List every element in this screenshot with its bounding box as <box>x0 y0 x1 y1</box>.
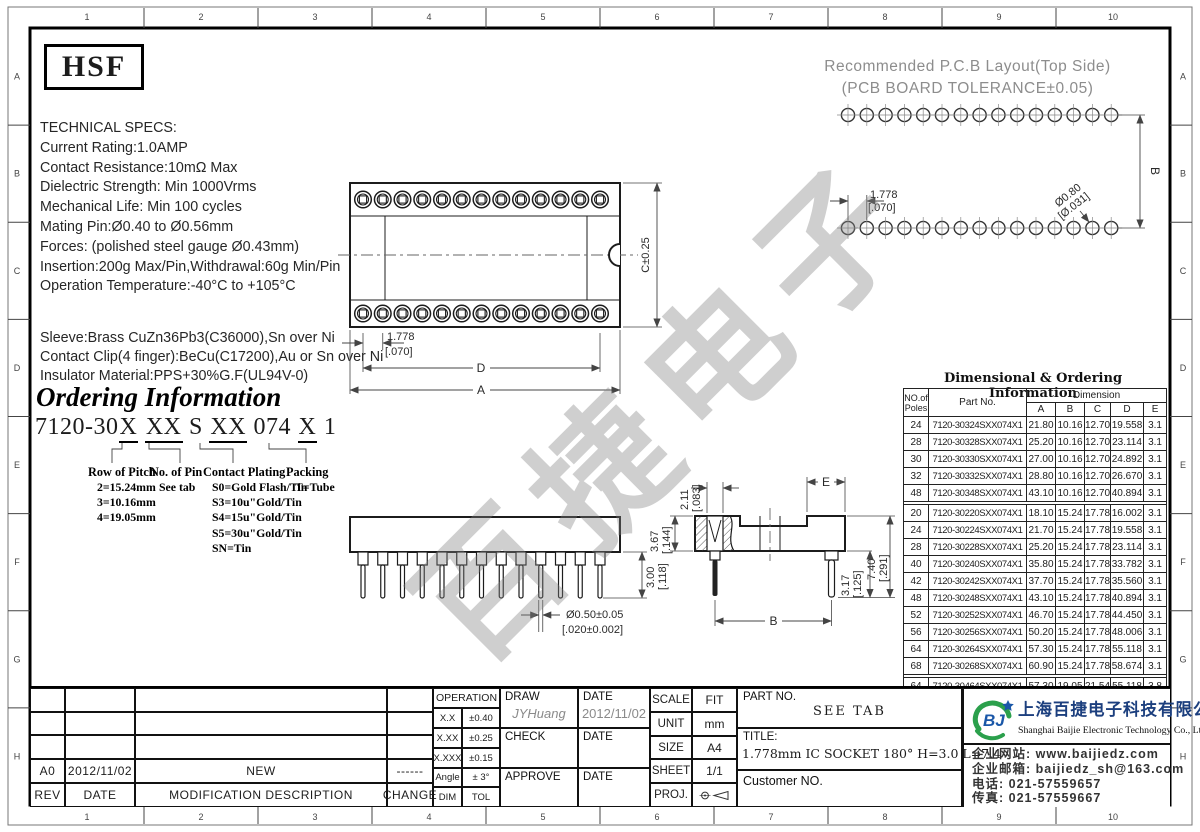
projection-symbol-cell <box>692 783 737 807</box>
svg-text:10: 10 <box>1108 12 1118 22</box>
sheet-info-value: 1/1 <box>692 759 737 783</box>
pin-diameter-dim: Ø0.50±0.05 <box>566 609 623 621</box>
table-row: 427120-30242SXX074X137.7015.2417.7835.56… <box>904 573 1167 590</box>
tolerance-header: OPERATION <box>433 688 500 708</box>
side-total-dim-in: [.291] <box>878 554 890 582</box>
table-row: 527120-30252SXX074X146.7015.2417.7844.45… <box>904 607 1167 624</box>
customer-cell: Customer NO. <box>737 770 962 807</box>
svg-text:7: 7 <box>768 812 773 822</box>
table-row: 287120-30228SXX074X125.2015.2417.7823.11… <box>904 539 1167 556</box>
part-code-segment <box>138 414 145 440</box>
revision-cell <box>30 712 65 735</box>
tech-specs-lines: Current Rating:1.0AMPContact Resistance:… <box>40 139 390 297</box>
table-row: 327120-30332SXX074X128.8010.1612.7026.67… <box>904 468 1167 485</box>
drawing-sheet: 1122334455667788991010AABBCCDDEEFFGGHH 百… <box>0 0 1200 832</box>
dim-col-header: A <box>1027 403 1056 417</box>
company-contact-cell: 企业网站: www.baijiedz.com企业邮箱: baijiedz_sh@… <box>962 744 1170 807</box>
svg-text:A: A <box>14 72 20 82</box>
revision-cell: 2012/11/02 <box>65 759 135 783</box>
svg-text:9: 9 <box>996 812 1001 822</box>
side-pin-dim: 3.17 <box>840 575 852 596</box>
approve-label: APPROVE <box>505 771 561 783</box>
table-row: 567120-30256SXX074X150.2015.2417.7848.00… <box>904 624 1167 641</box>
company-contact-line: 企业网站: www.baijiedz.com <box>972 747 1184 762</box>
revision-cell: A0 <box>30 759 65 783</box>
svg-text:9: 9 <box>996 12 1001 22</box>
ordering-part-code: 7120-30X XX S XX 074 X 1 <box>35 414 336 441</box>
side-b-dim: B <box>769 614 777 628</box>
svg-text:4: 4 <box>426 12 431 22</box>
part-code-segment: X <box>298 414 318 443</box>
spec-line: Operation Temperature:-40°C to +105°C <box>40 277 390 297</box>
pin-diameter-dim-in: [.020±0.002] <box>562 624 623 636</box>
check-cell: CHECK <box>500 728 578 768</box>
ordering-group-title: Packing <box>286 465 335 480</box>
svg-text:D: D <box>14 363 21 373</box>
svg-text:E: E <box>14 460 20 470</box>
revision-cell <box>135 735 387 759</box>
part-no-value: SEE TAB <box>813 704 886 719</box>
part-code-segment: 1 <box>317 414 336 440</box>
ordering-group-line: See tab <box>150 480 202 495</box>
svg-text:F: F <box>14 557 20 567</box>
side-pin-dim-in: [.125] <box>852 570 864 598</box>
tolerance-value: ±0.40 <box>462 708 500 728</box>
sheet-info-value: A4 <box>692 736 737 759</box>
table-row: 647120-30264SXX074X157.3015.2417.7855.11… <box>904 641 1167 658</box>
company-name-en: Shanghai Baijie Electronic Technology Co… <box>1018 725 1200 736</box>
table-row: 247120-30324SXX074X121.8010.1612.7019.55… <box>904 417 1167 434</box>
ordering-group-line: 4=19.05mm <box>88 510 156 525</box>
date-label: DATE <box>583 731 613 743</box>
part-code-segment: XX <box>209 414 247 443</box>
spec-line: Mating Pin:Ø0.40 to Ø0.56mm <box>40 218 390 238</box>
svg-text:B: B <box>1180 169 1186 179</box>
hsf-logo-box: HSF <box>44 44 144 90</box>
third-angle-projection-icon <box>698 788 732 803</box>
ordering-group-line: T=Tube <box>286 480 335 495</box>
spec-line: Current Rating:1.0AMP <box>40 139 390 159</box>
ordering-title: Ordering Information <box>36 382 281 413</box>
ordering-group: PackingT=Tube <box>286 465 335 495</box>
draw-date: 2012/11/02 <box>582 706 646 721</box>
socket-side-section: 2.11 [.083] 3.67 [.144] E 7.40 [.291] 3.… <box>650 468 908 660</box>
revision-cell: NEW <box>135 759 387 783</box>
tolerance-value: ± 3° <box>462 768 500 787</box>
ordering-group-line: SN=Tin <box>203 541 307 556</box>
spec-line: Dielectric Strength: Min 1000Vrms <box>40 178 390 198</box>
check-label: CHECK <box>505 731 545 743</box>
col-header-poles: NO.ofPoles <box>904 389 929 417</box>
ordering-group-line: S4=15u"Gold/Tin <box>203 510 307 525</box>
table-row: 487120-30348SXX074X143.1010.1612.7040.89… <box>904 485 1167 502</box>
side-body-dim-in: [.144] <box>661 526 673 554</box>
ordering-legend: Row of Pitch2=15.24mm3=10.16mm4=19.05mmN… <box>30 465 375 560</box>
sheet-info-label: SHEET <box>650 759 692 783</box>
tolerance-label: Angle <box>433 768 462 787</box>
ordering-group: Row of Pitch2=15.24mm3=10.16mm4=19.05mm <box>88 465 156 526</box>
svg-text:4: 4 <box>426 812 431 822</box>
tolerance-label: X.X <box>433 708 462 728</box>
draw-date-cell: DATE 2012/11/02 <box>578 688 650 728</box>
socket-pins <box>358 552 605 598</box>
svg-text:1: 1 <box>84 12 89 22</box>
side-body-dim: 3.67 <box>649 531 661 552</box>
svg-text:BJ: BJ <box>983 711 1005 730</box>
svg-text:8: 8 <box>882 812 887 822</box>
side-e-dim: E <box>822 475 830 489</box>
pcb-layout-drawing: 1.778 [.070] Ø0.80 [Ø.031] B <box>818 98 1170 250</box>
spec-line: Contact Resistance:10mΩ Max <box>40 159 390 179</box>
svg-text:7: 7 <box>768 12 773 22</box>
company-contact-line: 传真: 021-57559667 <box>972 791 1184 806</box>
revision-cell: CHANGE <box>387 783 433 807</box>
top-view-height-dim: C±0.25 <box>640 237 652 272</box>
dim-col-header: E <box>1144 403 1167 417</box>
part-code-segment: 7120-30 <box>35 414 119 440</box>
svg-text:10: 10 <box>1108 812 1118 822</box>
table-row: 307120-30330SXX074X127.0010.1612.7024.89… <box>904 451 1167 468</box>
svg-text:1: 1 <box>84 812 89 822</box>
socket-front-view: 3.00 [.118] Ø0.50±0.05 [.020±0.002] <box>340 500 680 660</box>
draw-name: JYHuang <box>512 706 565 721</box>
tolerance-value: ±0.15 <box>462 748 500 768</box>
revision-cell <box>65 735 135 759</box>
dim-table: NO.ofPoles Part No. Dimension ABCDE 2471… <box>903 388 1167 695</box>
customer-label: Customer NO. <box>738 771 823 788</box>
revision-cell <box>30 735 65 759</box>
date-label: DATE <box>583 771 613 783</box>
title-cell: TITLE: 1.778mm IC SOCKET 180° H=3.0 L=7.… <box>737 728 962 770</box>
svg-text:6: 6 <box>654 812 659 822</box>
approve-date-cell: DATE <box>578 768 650 807</box>
title-block: A02012/11/02NEW------REVDATEMODIFICATION… <box>30 686 1170 807</box>
revision-cell: REV <box>30 783 65 807</box>
ordering-group: No. of PinSee tab <box>150 465 202 495</box>
part-code-segment: X <box>119 414 139 443</box>
table-row: 687120-30268SXX074X160.9015.2417.7858.67… <box>904 658 1167 675</box>
part-code-segment: XX <box>145 414 183 443</box>
company-name-cn: 上海百捷电子科技有限公司 <box>1018 696 1200 720</box>
tech-specs-title: TECHNICAL SPECS: <box>40 119 390 139</box>
svg-text:G: G <box>13 654 20 664</box>
top-view-pitch-dim-in: [.070] <box>385 346 413 358</box>
top-view-d-dim: D <box>477 361 486 375</box>
table-row: 407120-30240SXX074X135.8015.2417.7833.78… <box>904 556 1167 573</box>
tolerance-label: X.XX <box>433 728 462 748</box>
socket-top-view: C±0.25 1.778 [.070] D A <box>340 175 672 405</box>
ordering-group-line: S3=10u"Gold/Tin <box>203 495 307 510</box>
revision-cell: MODIFICATION DESCRIPTION <box>135 783 387 807</box>
svg-text:C: C <box>1180 266 1187 276</box>
sheet-info-label: SIZE <box>650 736 692 759</box>
ordering-group-line: S5=30u"Gold/Tin <box>203 526 307 541</box>
side-total-dim: 7.40 <box>866 559 878 580</box>
tolerance-label: DIM <box>433 787 462 807</box>
table-row: 487120-30248SXX074X143.1015.2417.7840.89… <box>904 590 1167 607</box>
svg-text:E: E <box>1180 460 1186 470</box>
ordering-group-line: 3=10.16mm <box>88 495 156 510</box>
svg-text:A: A <box>1180 72 1186 82</box>
svg-text:H: H <box>14 751 21 761</box>
svg-text:5: 5 <box>540 812 545 822</box>
revision-cell <box>135 712 387 735</box>
date-label: DATE <box>583 691 613 703</box>
tech-specs: TECHNICAL SPECS: Current Rating:1.0AMPCo… <box>40 119 390 297</box>
ordering-group-title: No. of Pin <box>150 465 202 480</box>
dim-col-header: B <box>1056 403 1085 417</box>
part-code-segment: S <box>183 414 210 440</box>
pcb-pitch-dim: 1.778 <box>870 189 898 201</box>
ordering-group-line: 2=15.24mm <box>88 480 156 495</box>
side-contact-dim-in: [.083] <box>691 484 703 512</box>
svg-text:2: 2 <box>198 12 203 22</box>
tolerance-value: ±0.25 <box>462 728 500 748</box>
company-contact-line: 电话: 021-57559657 <box>972 777 1184 792</box>
top-view-a-dim: A <box>477 383 485 397</box>
spec-line: Insertion:200g Max/Pin,Withdrawal:60g Mi… <box>40 258 390 278</box>
spec-line: Forces: (polished steel gauge Ø0.43mm) <box>40 238 390 258</box>
pcb-pitch-dim-in: [.070] <box>868 202 896 214</box>
svg-text:G: G <box>1179 654 1186 664</box>
draw-cell: DRAW JYHuang <box>500 688 578 728</box>
revision-cell <box>65 712 135 735</box>
company-header-cell: BJ 上海百捷电子科技有限公司 Shanghai Baijie Electron… <box>962 688 1170 744</box>
svg-text:6: 6 <box>654 12 659 22</box>
company-contact-lines: 企业网站: www.baijiedz.com企业邮箱: baijiedz_sh@… <box>964 745 1184 806</box>
sheet-info-value: FIT <box>692 688 737 712</box>
revision-cell <box>65 688 135 712</box>
revision-cell <box>135 688 387 712</box>
hsf-logo-text: HSF <box>62 50 126 84</box>
svg-text:2: 2 <box>198 812 203 822</box>
svg-text:8: 8 <box>882 12 887 22</box>
svg-text:3: 3 <box>312 12 317 22</box>
revision-cell <box>387 712 433 735</box>
approve-cell: APPROVE <box>500 768 578 807</box>
dim-col-header: D <box>1111 403 1144 417</box>
pcb-layout-title: Recommended P.C.B Layout(Top Side) <box>795 58 1140 76</box>
revision-cell: DATE <box>65 783 135 807</box>
pcb-layout-subtitle: (PCB BOARD TOLERANCE±0.05) <box>795 80 1140 98</box>
sheet-info-value: mm <box>692 712 737 736</box>
company-logo: BJ <box>969 695 1015 741</box>
revision-cell <box>30 688 65 712</box>
check-date-cell: DATE <box>578 728 650 768</box>
part-no-label: PART NO. <box>743 691 796 703</box>
revision-cell <box>387 735 433 759</box>
sheet-info-label: UNIT <box>650 712 692 736</box>
svg-text:D: D <box>1180 363 1187 373</box>
title-label: TITLE: <box>738 729 778 743</box>
svg-text:F: F <box>1180 557 1186 567</box>
dim-col-header: C <box>1085 403 1111 417</box>
tolerance-label: X.XXX <box>433 748 462 768</box>
company-contact-line: 企业邮箱: baijiedz_sh@163.com <box>972 762 1184 777</box>
svg-text:B: B <box>14 169 20 179</box>
svg-text:3: 3 <box>312 812 317 822</box>
col-header-partno: Part No. <box>929 389 1027 417</box>
contact-pin <box>713 560 718 596</box>
col-header-dimension: Dimension <box>1027 389 1167 403</box>
pcb-span-dim: B <box>1148 167 1162 175</box>
side-contact-dim: 2.11 <box>679 489 691 510</box>
part-code-segment: 074 <box>247 414 298 440</box>
table-row: 247120-30224SXX074X121.7015.2417.7819.55… <box>904 522 1167 539</box>
top-view-pitch-dim: 1.778 <box>387 331 415 343</box>
table-row: 207120-30220SXX074X118.1015.2417.7816.00… <box>904 505 1167 522</box>
revision-cell <box>387 688 433 712</box>
tolerance-value: TOL <box>462 787 500 807</box>
svg-text:C: C <box>14 266 21 276</box>
draw-label: DRAW <box>505 691 540 703</box>
ordering-leader-lines <box>30 441 360 465</box>
svg-text:5: 5 <box>540 12 545 22</box>
ordering-group-title: Row of Pitch <box>88 465 156 480</box>
part-no-cell: PART NO. SEE TAB <box>737 688 962 728</box>
table-row: 287120-30328SXX074X125.2010.1612.7023.11… <box>904 434 1167 451</box>
proj-label: PROJ. <box>650 783 692 807</box>
spec-line: Mechanical Life: Min 100 cycles <box>40 198 390 218</box>
revision-cell: ------ <box>387 759 433 783</box>
sheet-info-label: SCALE <box>650 688 692 712</box>
